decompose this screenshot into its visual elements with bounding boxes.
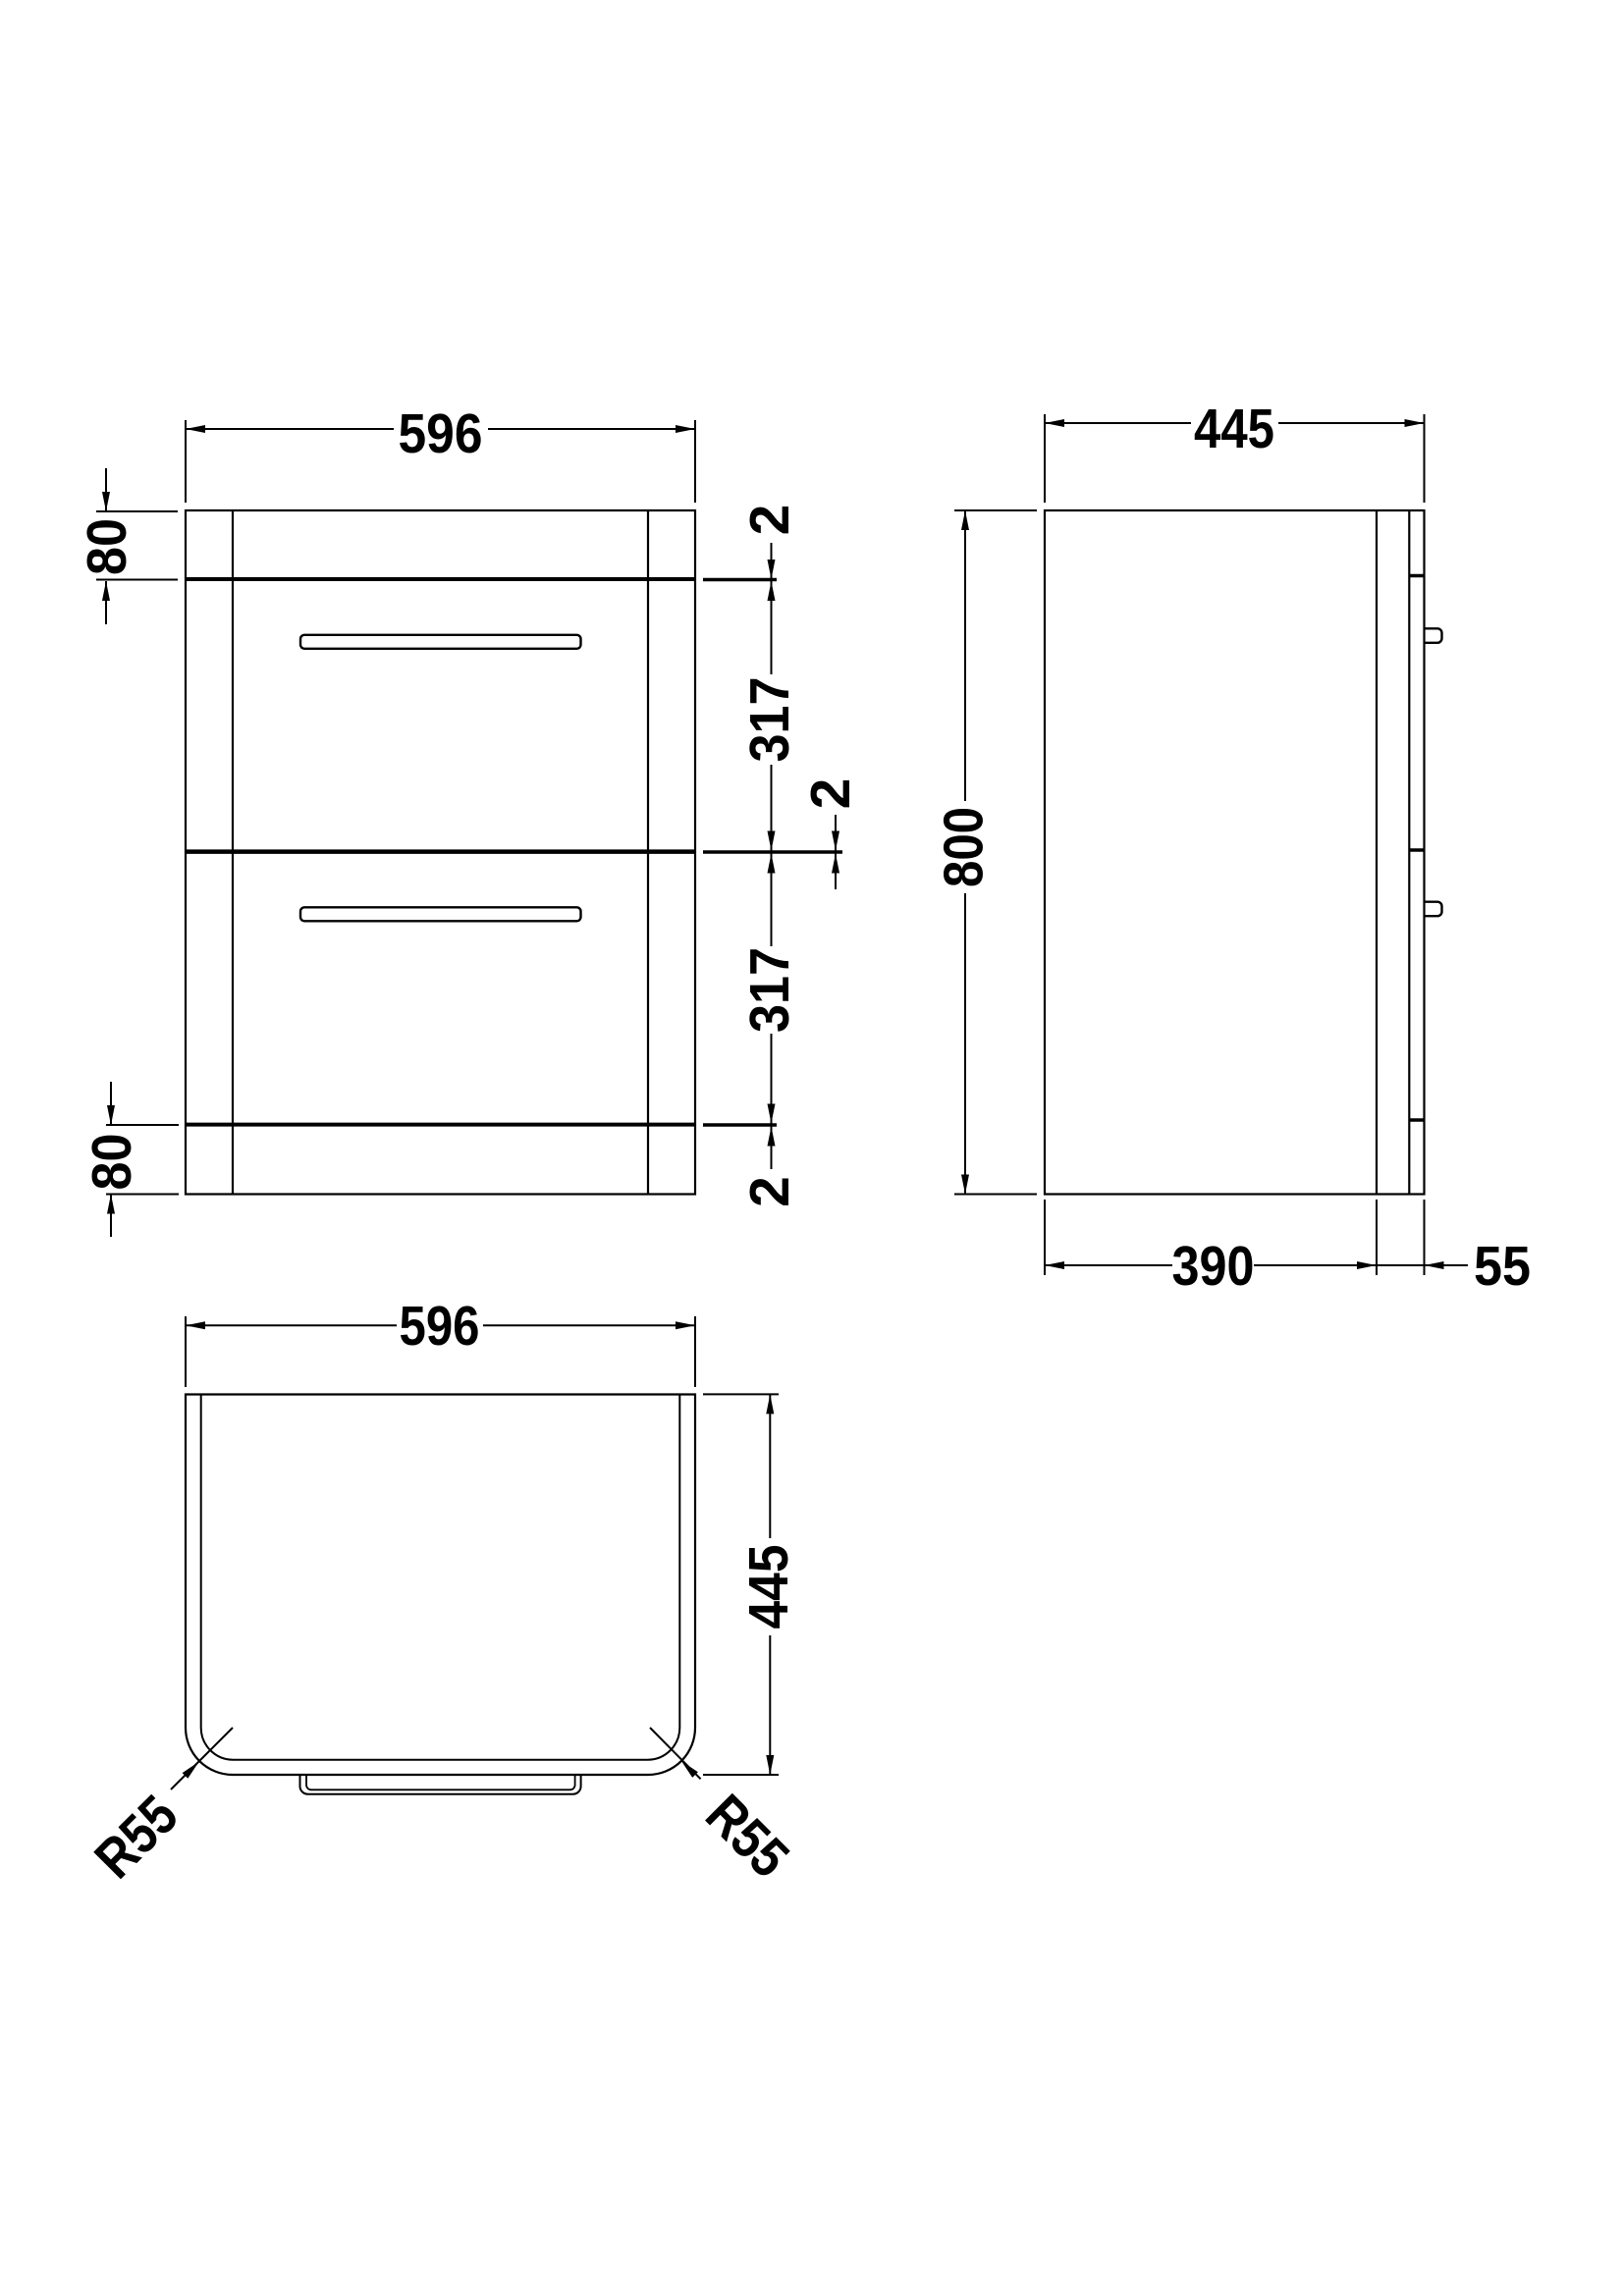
svg-text:80: 80 <box>81 1134 143 1191</box>
svg-text:2: 2 <box>799 778 862 810</box>
svg-text:317: 317 <box>738 947 801 1033</box>
svg-text:317: 317 <box>738 677 801 763</box>
svg-text:596: 596 <box>400 1295 480 1358</box>
svg-text:596: 596 <box>399 402 483 465</box>
svg-text:390: 390 <box>1172 1235 1255 1298</box>
svg-text:800: 800 <box>933 807 996 887</box>
svg-text:2: 2 <box>738 505 801 536</box>
svg-text:80: 80 <box>76 518 138 575</box>
svg-text:2: 2 <box>738 1176 801 1207</box>
svg-text:445: 445 <box>737 1545 800 1629</box>
svg-text:55: 55 <box>1474 1235 1531 1298</box>
svg-text:445: 445 <box>1194 398 1274 460</box>
